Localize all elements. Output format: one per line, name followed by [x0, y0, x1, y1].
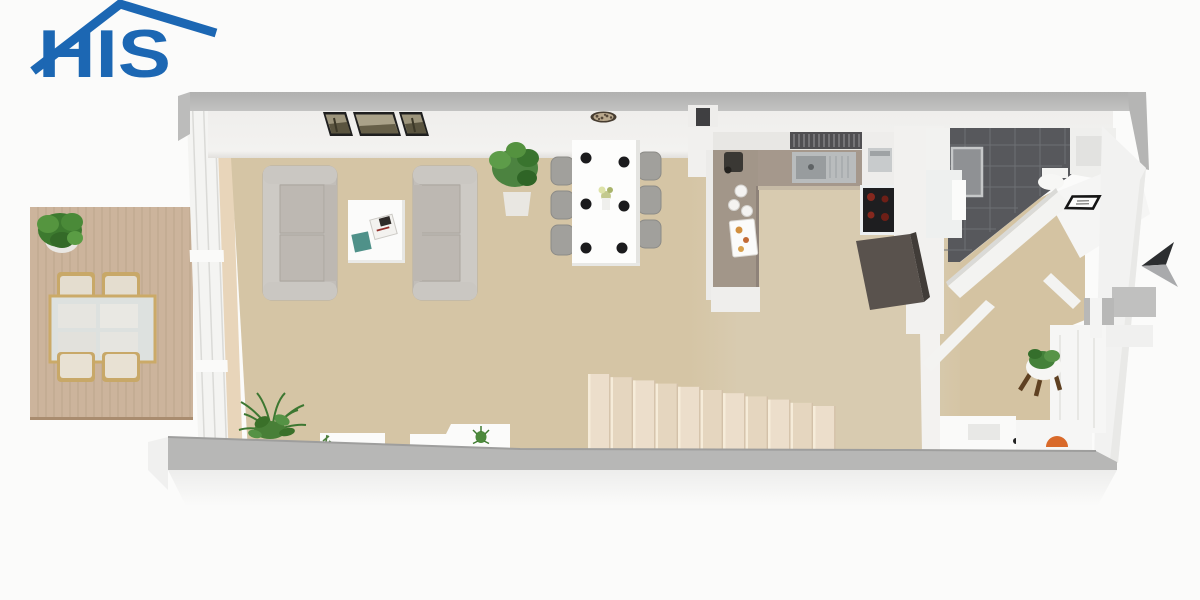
svg-text:HIS: HIS: [38, 16, 171, 92]
